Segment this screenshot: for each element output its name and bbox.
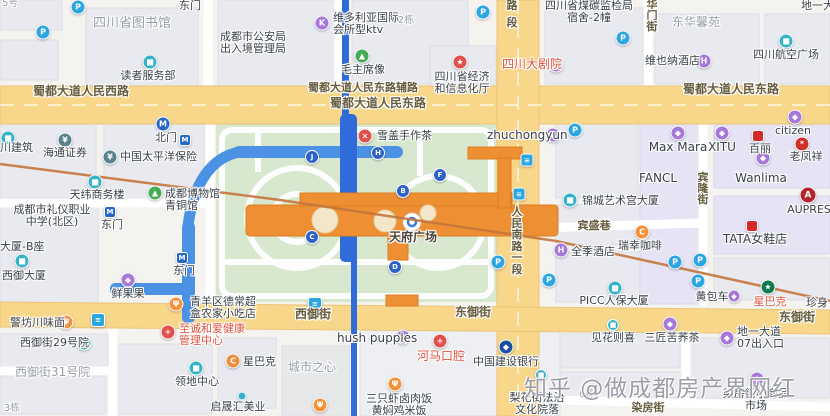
tata-shoes-icon[interactable]	[746, 220, 758, 232]
ranfang-street-label-label: 染房街	[632, 402, 665, 414]
city-heart-label: 城市之心	[288, 361, 336, 374]
parking-icon[interactable]: P	[476, 5, 491, 20]
xiyujie-31-yard-label: 西御街31号院	[15, 366, 90, 379]
chengdu-museum-bronze-label[interactable]: 成都博物馆青铜馆	[165, 188, 220, 213]
parking-icon[interactable]: P	[691, 274, 706, 289]
belle-icon[interactable]	[752, 130, 764, 142]
parking-icon[interactable]: P	[36, 25, 51, 40]
bus-stop-icon[interactable]: ≡	[521, 154, 534, 167]
metro-exit-b-icon[interactable]: B	[396, 184, 410, 198]
renmin-middle-road-label-label: 路段	[507, 0, 518, 31]
lingdi-center-icon[interactable]: ■	[189, 361, 204, 376]
chuanwei-noodle-shop-label[interactable]: 警坊川味面	[10, 317, 65, 329]
east-gate-library-label[interactable]: 东门	[179, 0, 201, 12]
bus-stop-icon[interactable]: ≡	[91, 313, 105, 327]
luckin-coffee-icon[interactable]: C	[635, 225, 650, 240]
metro-entrance-icon[interactable]: M	[104, 206, 116, 218]
metro-entrance-icon[interactable]: M	[176, 252, 188, 264]
parking-icon[interactable]: P	[71, 0, 86, 15]
jianhuazexi-label[interactable]: 见花则喜	[591, 332, 635, 344]
sanzhixia-restaurant-icon[interactable]: Ψ	[388, 377, 403, 392]
xitu-icon[interactable]: ◆	[715, 126, 730, 141]
chengdu-museum-bronze-icon[interactable]: ▲	[148, 186, 163, 201]
vienna-hotel-label[interactable]: 维也纳酒店	[645, 55, 700, 67]
econ-info-dept-icon[interactable]: ★	[453, 55, 468, 70]
huamen-street-label-label: 华门街	[647, 0, 658, 32]
diyi-avenue-exit-07-icon[interactable]: ◆	[720, 331, 735, 346]
road-shudu-renmin-east-label: 蜀都大道人民东路	[330, 97, 426, 110]
corner-label-label: 5号	[2, 0, 18, 9]
poi-layer: PPPPPPPPPP≡≡≡≡MMMMJHFBCD四川省图书馆■读者服务部东门成都…	[0, 0, 830, 416]
metro-exit-d-icon[interactable]: D	[388, 260, 402, 274]
road-shudu-renmin-east-2-label: 蜀都大道人民东路	[683, 83, 779, 96]
qingyang-snack-shop-icon[interactable]: Ψ	[169, 297, 184, 312]
xianguoguo-label[interactable]: 鲜果果	[112, 288, 145, 300]
citizen-label[interactable]: citizen	[775, 125, 811, 137]
starbucks-east-label[interactable]: 星巴克	[754, 296, 787, 308]
victoria-intl-ktv-icon[interactable]: K	[315, 16, 330, 31]
road-shudu-renmin-east-aux-label: 蜀都大道人民东路辅路	[308, 82, 418, 94]
zhuchongyun-label[interactable]: zhuchongyun	[487, 129, 568, 142]
victoria-intl-ktv-label[interactable]: 维多利亚国际会所型ktv	[333, 12, 399, 37]
xitu-label[interactable]: XITU	[708, 141, 736, 154]
renmin-south-road-label-label: 人民南路一段	[512, 206, 523, 275]
bus-stop-icon[interactable]: ≡	[513, 188, 526, 201]
exit-entry-admin-bureau-label[interactable]: 成都市公安局出入境管理局	[220, 31, 286, 56]
xiyu-mansion-icon[interactable]: ■	[15, 254, 30, 269]
diyi-avenue-label[interactable]: 地一大道	[801, 0, 830, 12]
huangbaoche-label[interactable]: 黄包车	[696, 291, 729, 303]
starbucks-east-icon[interactable]: ★	[761, 280, 776, 295]
jianhuazexi-icon[interactable]: ■	[607, 319, 619, 331]
donghua-xinyuan-label: 东华馨苑	[672, 16, 720, 29]
metro-exit-c-icon[interactable]: C	[305, 230, 319, 244]
jincheng-art-palace-tower-icon[interactable]: ■	[563, 193, 578, 208]
tianfu-square-station-label[interactable]: 天府广场	[389, 231, 437, 244]
parking-icon[interactable]: P	[668, 255, 683, 270]
cpic-insurance-icon[interactable]: ¥	[103, 150, 118, 165]
hema-dental-icon[interactable]: +	[433, 334, 448, 349]
sanjiang-buckwheat-tea-icon[interactable]: ◆	[663, 317, 678, 332]
mao-statue-label[interactable]: 毛主席像	[341, 64, 385, 76]
starbucks-west-label[interactable]: 星巴克	[243, 356, 276, 368]
chuan-construction-label[interactable]: 川建筑	[0, 142, 33, 154]
ji-hotel-icon[interactable]: H	[554, 243, 569, 258]
wanlima-label[interactable]: Wanlima	[735, 172, 787, 185]
watermark: 知乎 @做成都房产界网红	[524, 369, 796, 403]
reader-service-dept-icon[interactable]: ■	[143, 55, 158, 70]
parking-icon[interactable]: P	[491, 255, 506, 270]
parking-icon[interactable]: P	[568, 123, 583, 138]
parking-icon[interactable]: P	[542, 273, 557, 288]
ccb-bank-icon[interactable]: ◆	[499, 340, 514, 355]
xuegai-handmade-tea-label[interactable]: 雪盖手作茶	[377, 130, 432, 142]
zhicheng-health-center-icon[interactable]: +	[161, 325, 176, 340]
hush-puppies-label[interactable]: hush pupples	[337, 332, 417, 345]
east-gate-2-label[interactable]: 东门	[173, 265, 195, 277]
road-shudu-renmin-west-label: 蜀都大道人民西路	[33, 85, 129, 98]
tata-shoes-label[interactable]: TATA女鞋店	[723, 233, 787, 246]
xianguoguo-icon[interactable]: ◆	[121, 273, 136, 288]
haitong-securities-label[interactable]: 海通证券	[43, 147, 87, 159]
metro-entrance-icon[interactable]: M	[156, 117, 171, 132]
jincheng-art-palace-tower-label[interactable]: 锦城艺术宫大厦	[582, 195, 659, 207]
tianwei-tower-label[interactable]: 天纬商务楼	[70, 189, 125, 201]
xiyujie-29-yard-label[interactable]: 西御街29号院	[20, 337, 89, 349]
huangbaoche-icon[interactable]: ◆	[728, 290, 741, 303]
map-canvas[interactable]: PPPPPPPPPP≡≡≡≡MMMMJHFBCD四川省图书馆■读者服务部东门成都…	[0, 0, 830, 416]
parking-icon[interactable]: P	[616, 31, 631, 46]
coal-bureau-dorm-label[interactable]: 四川省煤碳监检局宿舍-2幢	[545, 0, 633, 25]
north-gate-label[interactable]: 北门	[155, 132, 177, 144]
sichuan-provincial-library-label: 四川省图书馆	[93, 17, 171, 32]
reader-service-dept-label[interactable]: 读者服务部	[121, 70, 176, 82]
zhenshen-label[interactable]: 珍身	[806, 297, 828, 309]
econ-info-dept-label[interactable]: 四川省经济和信息化厅	[435, 71, 490, 96]
ccb-bank-label[interactable]: 中国建设银行	[473, 356, 539, 368]
metro-exit-h-icon[interactable]: H	[371, 146, 385, 160]
sanzhixia-restaurant-label[interactable]: 三只虾卤肉饭黄焖鸡米饭	[366, 393, 432, 416]
cpic-insurance-label[interactable]: 中国太平洋保险	[120, 151, 197, 163]
sichuan-airlines-plaza-icon[interactable]: ■	[779, 34, 794, 49]
qisheng-beauty-label[interactable]: 启晟汇美业	[211, 401, 266, 413]
sichuan-grand-theatre-label[interactable]: 四川大剧院	[502, 58, 562, 71]
road-dongyu-street-2-label: 东御街	[779, 311, 815, 324]
building-3dong-label: 3栋	[4, 403, 20, 414]
road-xiyu-street-label: 西御街	[295, 308, 331, 321]
belle-label[interactable]: 百丽	[749, 143, 771, 155]
xiyu-mansion-label[interactable]: 西御大厦	[2, 270, 46, 282]
poi-food-icon[interactable]: Ψ	[313, 398, 328, 413]
east-gate-1-label[interactable]: 东门	[101, 219, 123, 231]
road-dongyu-street-label: 东御街	[455, 306, 491, 319]
qingyang-snack-shop-label[interactable]: 青羊区德常超盒农家小吃店	[190, 296, 256, 321]
etiquette-vocational-school-label[interactable]: 成都市礼仪职业中学(北区)	[14, 204, 91, 229]
starbucks-west-icon[interactable]: C	[226, 354, 241, 369]
metro-exit-j-icon[interactable]: J	[305, 150, 319, 164]
tower-b-label[interactable]: 大厦-B座	[0, 241, 45, 253]
sichuan-airlines-plaza-label[interactable]: 四川航空广场	[753, 49, 819, 61]
citizen-icon[interactable]: ◆	[788, 110, 803, 125]
metro-entrance-icon[interactable]: M	[179, 134, 191, 146]
max-mara-label[interactable]: Max Mara	[649, 141, 708, 154]
diyi-avenue-exit-07-label[interactable]: 地一大道07出入口	[737, 326, 784, 351]
xuegai-handmade-tea-icon[interactable]: ×	[358, 129, 373, 144]
binsheng-lane-label-label: 宾盛巷	[578, 220, 611, 232]
fancl-label[interactable]: FANCL	[639, 172, 677, 185]
sanjiang-buckwheat-tea-label[interactable]: 三匠苦荞茶	[645, 332, 700, 344]
metro-exit-f-icon[interactable]: F	[433, 168, 447, 182]
building-2dong-label: 2栋	[398, 15, 414, 26]
max-mara-icon[interactable]: ◆	[671, 126, 686, 141]
aupres-label[interactable]: AUPRES	[787, 204, 830, 216]
binlong-street-label-label: 宾隆街	[698, 172, 709, 205]
mao-statue-icon[interactable]: ▲	[355, 49, 370, 64]
lingdi-center-label[interactable]: 领地中心	[175, 376, 219, 388]
picc-tower-label[interactable]: PICC人保大厦	[579, 295, 648, 307]
aupres-icon[interactable]: A	[800, 187, 817, 204]
luckin-coffee-label[interactable]: 瑞幸咖啡	[618, 240, 662, 252]
hema-dental-label[interactable]: 河马口腔	[417, 350, 465, 363]
ji-hotel-label[interactable]: 全季酒店	[571, 246, 615, 258]
laofengxiang-label[interactable]: 老凤祥	[790, 151, 823, 163]
zhicheng-health-center-label[interactable]: 至诚和爱健康管理中心	[179, 323, 245, 348]
parking-icon[interactable]: P	[693, 253, 708, 268]
